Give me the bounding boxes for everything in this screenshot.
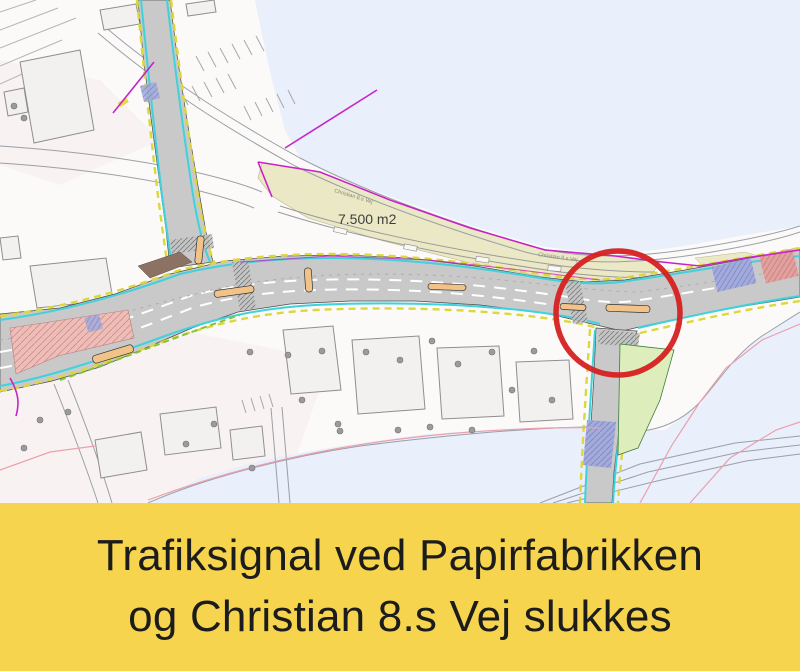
site-plan-image: 7.500 m2 Christian 8.s Vej Christian 8.s…: [0, 0, 800, 503]
screenshot-root: 7.500 m2 Christian 8.s Vej Christian 8.s…: [0, 0, 800, 671]
caption-banner: Trafiksignal ved Papirfabrikken og Chris…: [0, 503, 800, 671]
area-label: 7.500 m2: [338, 211, 397, 227]
site-plan-map: 7.500 m2 Christian 8.s Vej Christian 8.s…: [0, 0, 800, 503]
caption-line-1: Trafiksignal ved Papirfabrikken: [97, 531, 703, 582]
caption-line-2: og Christian 8.s Vej slukkes: [128, 592, 672, 643]
